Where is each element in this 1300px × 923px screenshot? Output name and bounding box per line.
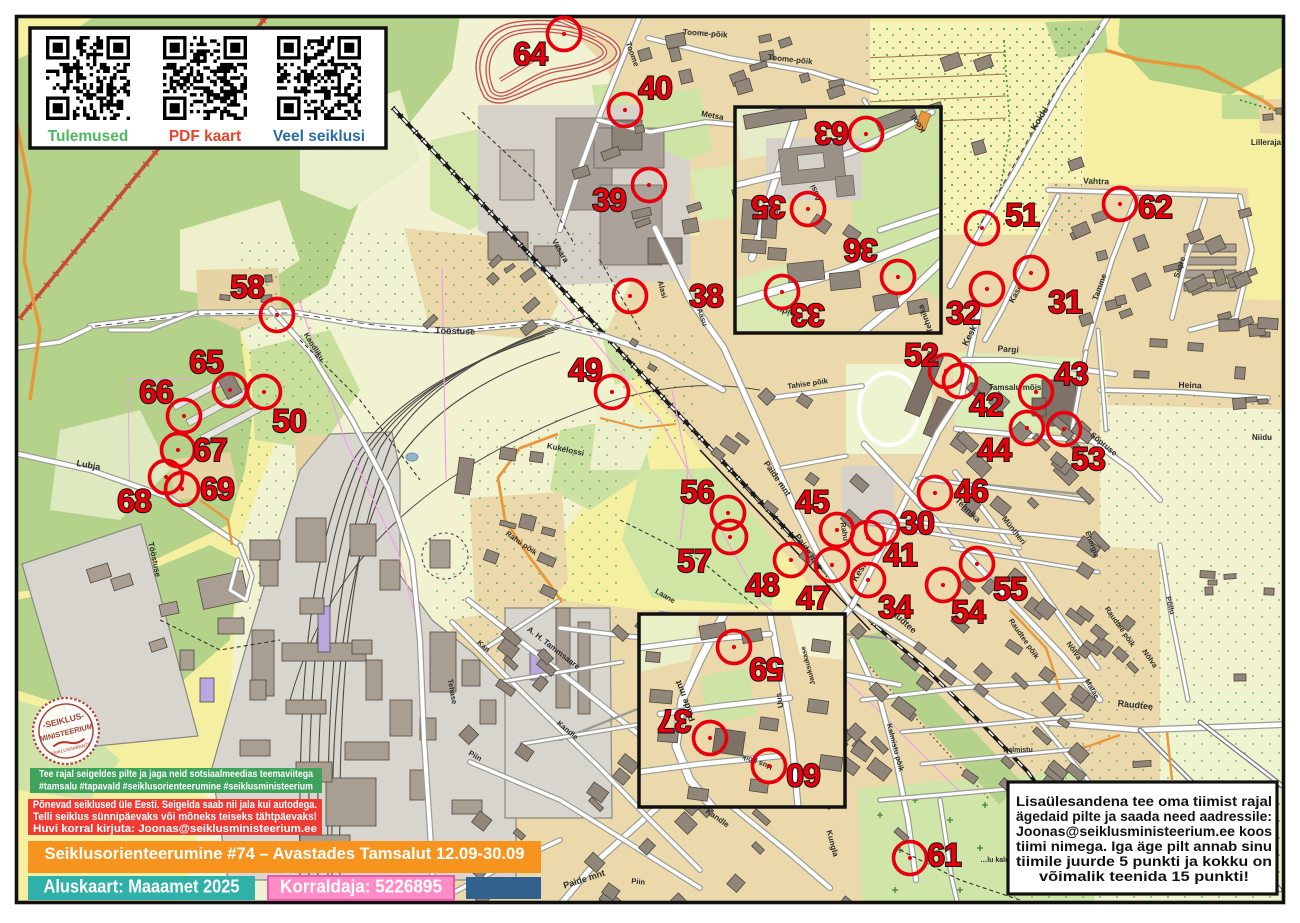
svg-text:39: 39 (592, 182, 626, 218)
svg-text:44: 44 (977, 432, 1012, 468)
svg-text:Seiklusorienteerumine #74 – Av: Seiklusorienteerumine #74 – Avastades Ta… (45, 845, 525, 863)
svg-text:Veel seiklusi: Veel seiklusi (273, 128, 365, 145)
svg-text:43: 43 (1054, 356, 1088, 392)
svg-text:49: 49 (568, 352, 602, 388)
svg-text:Telli seiklus sünnipäevaks või: Telli seiklus sünnipäevaks või mõneks te… (33, 811, 317, 823)
svg-text:55: 55 (993, 571, 1027, 607)
svg-text:võimalik teenida 15 punkti!: võimalik teenida 15 punkti! (1039, 869, 1249, 885)
svg-text:59: 59 (750, 651, 784, 687)
svg-text:Vahtra: Vahtra (1083, 176, 1110, 187)
svg-text:Põnevad seiklused üle Eesti. S: Põnevad seiklused üle Eesti. Seigelda sa… (33, 799, 317, 811)
svg-text:30: 30 (900, 505, 934, 541)
svg-text:Lilleraja: Lilleraja (1251, 138, 1282, 147)
svg-text:50: 50 (272, 403, 306, 439)
svg-text:Tööstuse: Tööstuse (435, 325, 475, 336)
svg-text:Joonas@seiklusministeerium.ee: Joonas@seiklusministeerium.ee koos (1016, 824, 1272, 840)
svg-text:Huvi korral kirjuta: Joonas@se: Huvi korral kirjuta: Joonas@seiklusminis… (33, 823, 317, 835)
svg-text:46: 46 (954, 473, 988, 509)
svg-text:Tee rajal seigeldes pilte ja j: Tee rajal seigeldes pilte ja jaga neid s… (39, 769, 313, 780)
svg-text:61: 61 (927, 837, 961, 873)
svg-text:47: 47 (796, 580, 830, 616)
svg-text:48: 48 (745, 567, 779, 603)
svg-text:36: 36 (844, 232, 878, 268)
svg-text:PDF kaart: PDF kaart (169, 128, 241, 145)
svg-text:65: 65 (189, 344, 223, 380)
svg-text:68: 68 (117, 483, 151, 519)
svg-text:57: 57 (677, 543, 711, 579)
svg-text:Korraldaja: 5226895: Korraldaja: 5226895 (280, 876, 442, 897)
svg-text:35: 35 (752, 189, 786, 225)
svg-text:37: 37 (658, 703, 692, 739)
svg-text:Lisaülesandena tee oma tiimist: Lisaülesandena tee oma tiimist rajal (1016, 794, 1272, 810)
svg-text:Niidu: Niidu (1252, 433, 1272, 442)
svg-text:56: 56 (680, 474, 714, 510)
svg-text:38: 38 (689, 278, 723, 314)
svg-text:31: 31 (1048, 284, 1082, 320)
svg-text:41: 41 (883, 537, 917, 573)
svg-text:66: 66 (139, 374, 173, 410)
svg-text:ägedaid pilte ja saada need aa: ägedaid pilte ja saada need aadressile: (1016, 809, 1272, 825)
svg-text:67: 67 (193, 432, 227, 468)
svg-text:33: 33 (791, 297, 825, 333)
svg-text:58: 58 (230, 269, 264, 305)
svg-text:54: 54 (951, 594, 986, 630)
svg-text:64: 64 (513, 36, 548, 72)
svg-text:tiimi nimega. Iga äge pilt ann: tiimi nimega. Iga äge pilt annab sinu (1016, 839, 1272, 855)
svg-text:42: 42 (969, 387, 1003, 423)
svg-text:Heina: Heina (1178, 380, 1202, 391)
svg-text:Aluskaart: Maaamet 2025: Aluskaart: Maaamet 2025 (44, 876, 240, 897)
svg-text:69: 69 (200, 471, 234, 507)
svg-text:53: 53 (1071, 441, 1105, 477)
svg-text:Piin: Piin (631, 876, 646, 886)
svg-text:tiimile juurde 5 punkti ja kok: tiimile juurde 5 punkti ja kokku on (1016, 854, 1272, 870)
svg-text:#tamsalu #tapavald #seiklusori: #tamsalu #tapavald #seiklusorienteerumin… (39, 781, 313, 792)
svg-text:40: 40 (638, 70, 672, 106)
svg-text:Tulemused: Tulemused (48, 128, 129, 145)
svg-text:Pargi: Pargi (997, 343, 1019, 354)
svg-text:60: 60 (787, 757, 821, 793)
svg-text:Kalmistu: Kalmistu (1003, 747, 1033, 754)
svg-text:45: 45 (795, 484, 829, 520)
svg-text:63: 63 (815, 115, 849, 151)
svg-text:62: 62 (1138, 189, 1172, 225)
svg-text:52: 52 (904, 337, 938, 373)
svg-text:51: 51 (1005, 197, 1039, 233)
svg-text:34: 34 (878, 589, 913, 625)
svg-text:32: 32 (946, 295, 980, 331)
